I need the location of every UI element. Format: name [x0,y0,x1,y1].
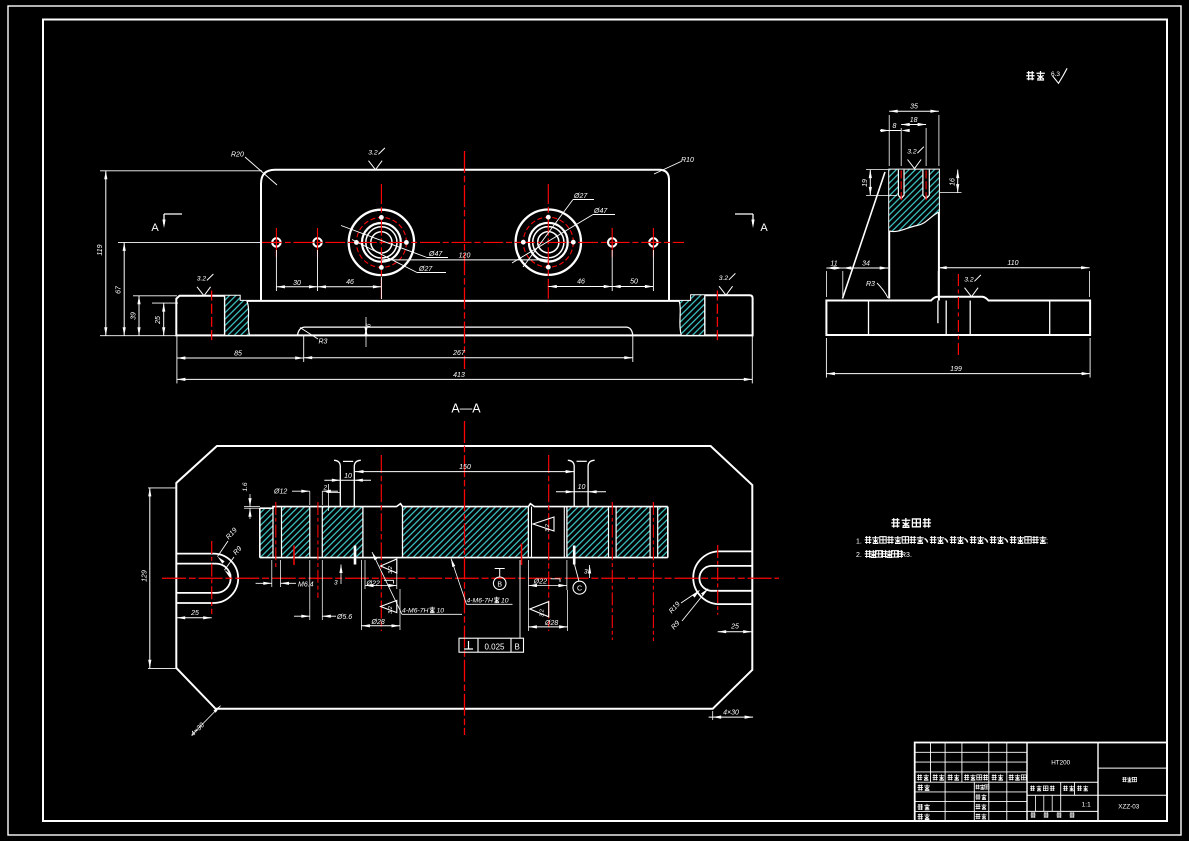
svg-text:16: 16 [949,178,956,186]
svg-text:267: 267 [452,350,466,357]
svg-text:R20: R20 [231,152,244,159]
svg-text:B: B [515,642,520,651]
svg-text:R3: R3 [319,339,328,346]
svg-text:R3.: R3. [901,552,912,559]
svg-text:R10: R10 [681,157,694,164]
svg-text:4×30: 4×30 [723,710,739,717]
svg-text:120: 120 [459,252,471,259]
svg-text:6.3: 6.3 [1051,71,1060,78]
svg-text:25: 25 [190,610,199,617]
svg-text:Ø5.6: Ø5.6 [336,614,352,621]
svg-text:199: 199 [950,366,962,373]
svg-text:30: 30 [293,280,301,287]
svg-text:1:1: 1:1 [1082,802,1091,809]
svg-text:3: 3 [334,580,338,587]
svg-text:85: 85 [234,351,242,358]
svg-text:67: 67 [116,285,123,294]
svg-text:3: 3 [584,569,588,576]
svg-text:1.: 1. [856,539,862,546]
svg-text:2: 2 [323,485,328,492]
svg-text:25: 25 [730,624,739,631]
svg-text:50: 50 [630,279,638,286]
svg-text:XZZ-03: XZZ-03 [1118,803,1139,810]
svg-text:39: 39 [131,312,138,320]
svg-text:Ø27: Ø27 [418,266,433,273]
svg-text:10: 10 [501,598,509,605]
svg-text:Ø28: Ø28 [544,620,558,627]
svg-text:4-M6-7H: 4-M6-7H [467,598,494,605]
svg-text:2.: 2. [856,552,862,559]
svg-text:A—A: A—A [451,402,481,416]
svg-text:3.2: 3.2 [197,276,207,283]
svg-text:110: 110 [1007,260,1018,267]
svg-text:34: 34 [862,260,870,267]
svg-text:8: 8 [893,123,897,130]
svg-text:150: 150 [459,464,471,471]
svg-text:Ø12: Ø12 [273,489,287,496]
svg-text:3.2: 3.2 [540,609,546,617]
svg-text:Ø47: Ø47 [428,251,443,258]
svg-text:0.025: 0.025 [484,642,505,651]
svg-text:3.2: 3.2 [907,148,917,155]
svg-text:413: 413 [453,372,465,379]
svg-text:35: 35 [910,104,918,111]
svg-text:1.6: 1.6 [242,482,249,491]
svg-text:19: 19 [862,179,869,187]
svg-text:11: 11 [830,260,837,267]
svg-text:A: A [151,222,159,234]
svg-text:Ø22: Ø22 [533,579,547,586]
svg-text:10: 10 [578,484,586,491]
svg-text:3.2: 3.2 [545,524,551,532]
svg-text:A: A [760,222,768,234]
svg-text:C: C [577,586,582,593]
svg-text:10: 10 [437,608,445,615]
svg-text:3.2: 3.2 [368,150,378,157]
svg-text:46: 46 [577,279,585,286]
svg-text:129: 129 [142,570,149,582]
svg-text:Ø27: Ø27 [573,193,588,200]
svg-text:Ø28: Ø28 [371,619,385,626]
svg-text:25: 25 [155,316,162,325]
svg-text:3.2: 3.2 [964,277,974,284]
svg-text:R3: R3 [866,281,875,288]
svg-text:;: ; [1046,536,1048,545]
svg-text:18: 18 [910,117,918,124]
svg-text:Ø47: Ø47 [593,208,608,215]
svg-text:10: 10 [344,473,352,480]
svg-text:3.2: 3.2 [388,566,394,574]
svg-text:46: 46 [346,279,354,286]
svg-text:4-M6-7H: 4-M6-7H [402,608,429,615]
svg-text:B: B [497,581,502,588]
svg-text:3.2: 3.2 [388,606,394,614]
svg-text:M6.4: M6.4 [298,582,314,589]
svg-text:3.2: 3.2 [719,275,729,282]
svg-text:119: 119 [97,244,104,255]
svg-text:HT200: HT200 [1051,759,1070,766]
